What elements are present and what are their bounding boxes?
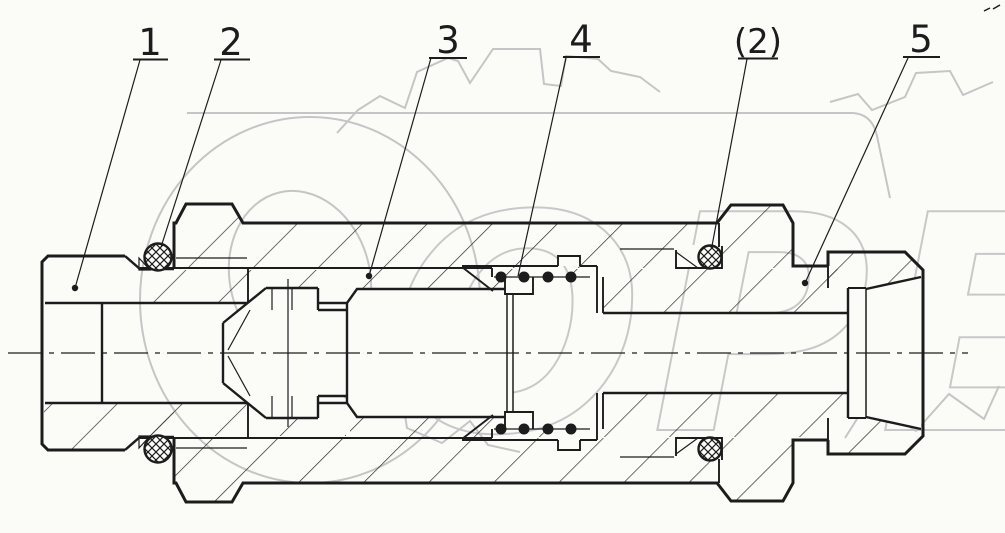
callout-1-dot bbox=[72, 285, 78, 291]
o-ring-top-right bbox=[699, 246, 722, 269]
callout-1-label: 1 bbox=[138, 21, 162, 64]
o-ring-bottom-left bbox=[145, 436, 172, 463]
callout-5-label: 5 bbox=[909, 18, 933, 61]
spring-coil bbox=[543, 424, 554, 435]
hatch-nipple-bottom bbox=[604, 394, 848, 437]
watermark-gear-teeth-top-right bbox=[830, 71, 993, 110]
callout-5-dot bbox=[802, 280, 808, 286]
callout-3-label: 3 bbox=[436, 19, 460, 62]
spring-coil bbox=[566, 424, 577, 435]
tab-bottom-fill bbox=[558, 440, 580, 450]
corner-mark bbox=[984, 5, 1000, 11]
spring-coil bbox=[496, 424, 507, 435]
valve-section-drawing: OPEX bbox=[0, 0, 1005, 533]
hatch-nipple-top bbox=[604, 269, 848, 312]
drawing-canvas: OPEX bbox=[0, 0, 1005, 533]
spring-coil bbox=[496, 272, 507, 283]
spring-coil bbox=[566, 272, 577, 283]
spring-coil bbox=[519, 424, 530, 435]
callout-2b-label: (2) bbox=[734, 22, 782, 62]
o-ring-bottom-right bbox=[699, 438, 722, 461]
o-ring-top-left bbox=[145, 244, 172, 271]
callout-1-leader bbox=[75, 60, 140, 288]
callout-2-label: 2 bbox=[219, 21, 243, 64]
spring-coil bbox=[519, 272, 530, 283]
spring-coil bbox=[543, 272, 554, 283]
callout-4-label: 4 bbox=[569, 18, 593, 61]
watermark-gear-teeth-top bbox=[337, 49, 660, 133]
callout-3-dot bbox=[366, 273, 372, 279]
tab-top-fill bbox=[558, 256, 580, 266]
